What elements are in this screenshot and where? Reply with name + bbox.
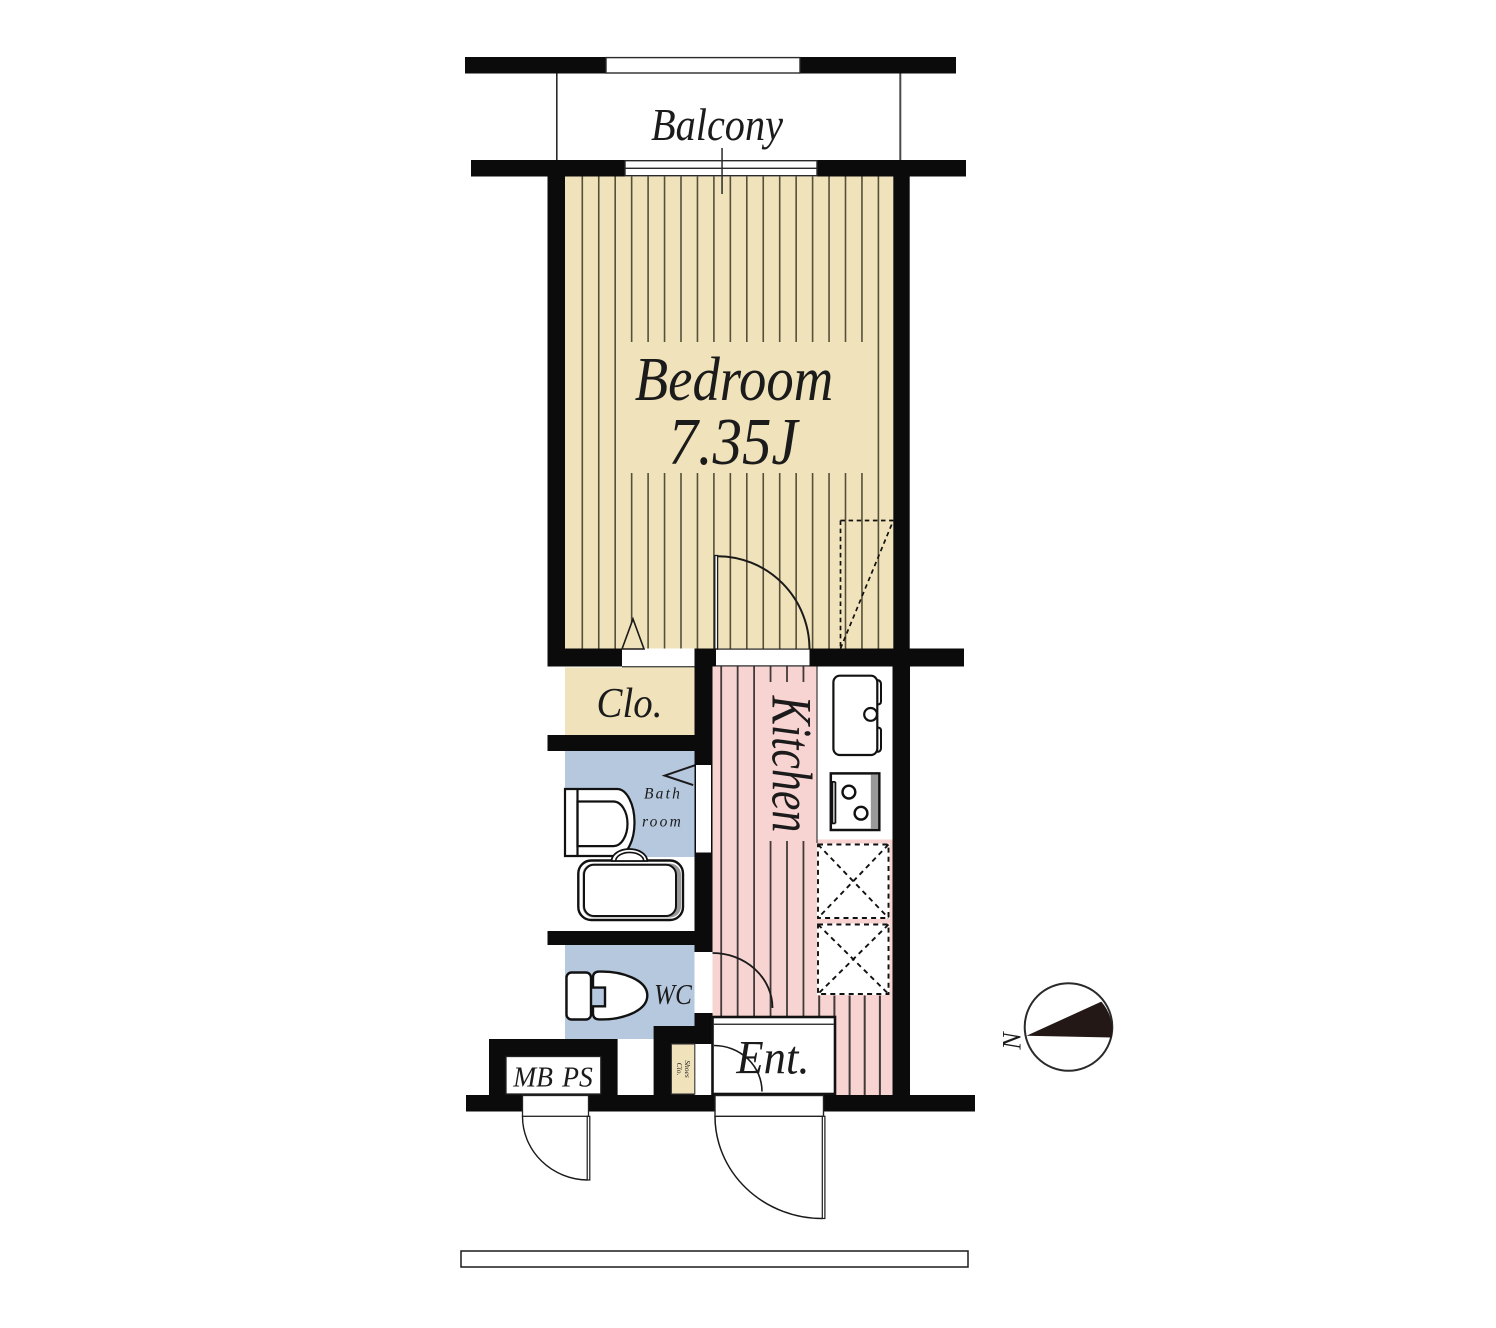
svg-text:Bath: Bath [644,786,682,803]
svg-text:Bedroom: Bedroom [635,343,833,413]
svg-text:MB PS: MB PS [512,1062,592,1094]
svg-text:room: room [642,814,683,831]
svg-text:WC: WC [654,978,692,1010]
svg-text:Balcony: Balcony [651,101,783,151]
svg-text:ShoesClo.: ShoesClo. [675,1060,692,1078]
svg-text:7.35J: 7.35J [668,404,800,478]
svg-text:N: N [997,1031,1026,1051]
svg-text:Kitchen: Kitchen [760,695,823,833]
svg-text:Clo.: Clo. [597,680,663,727]
